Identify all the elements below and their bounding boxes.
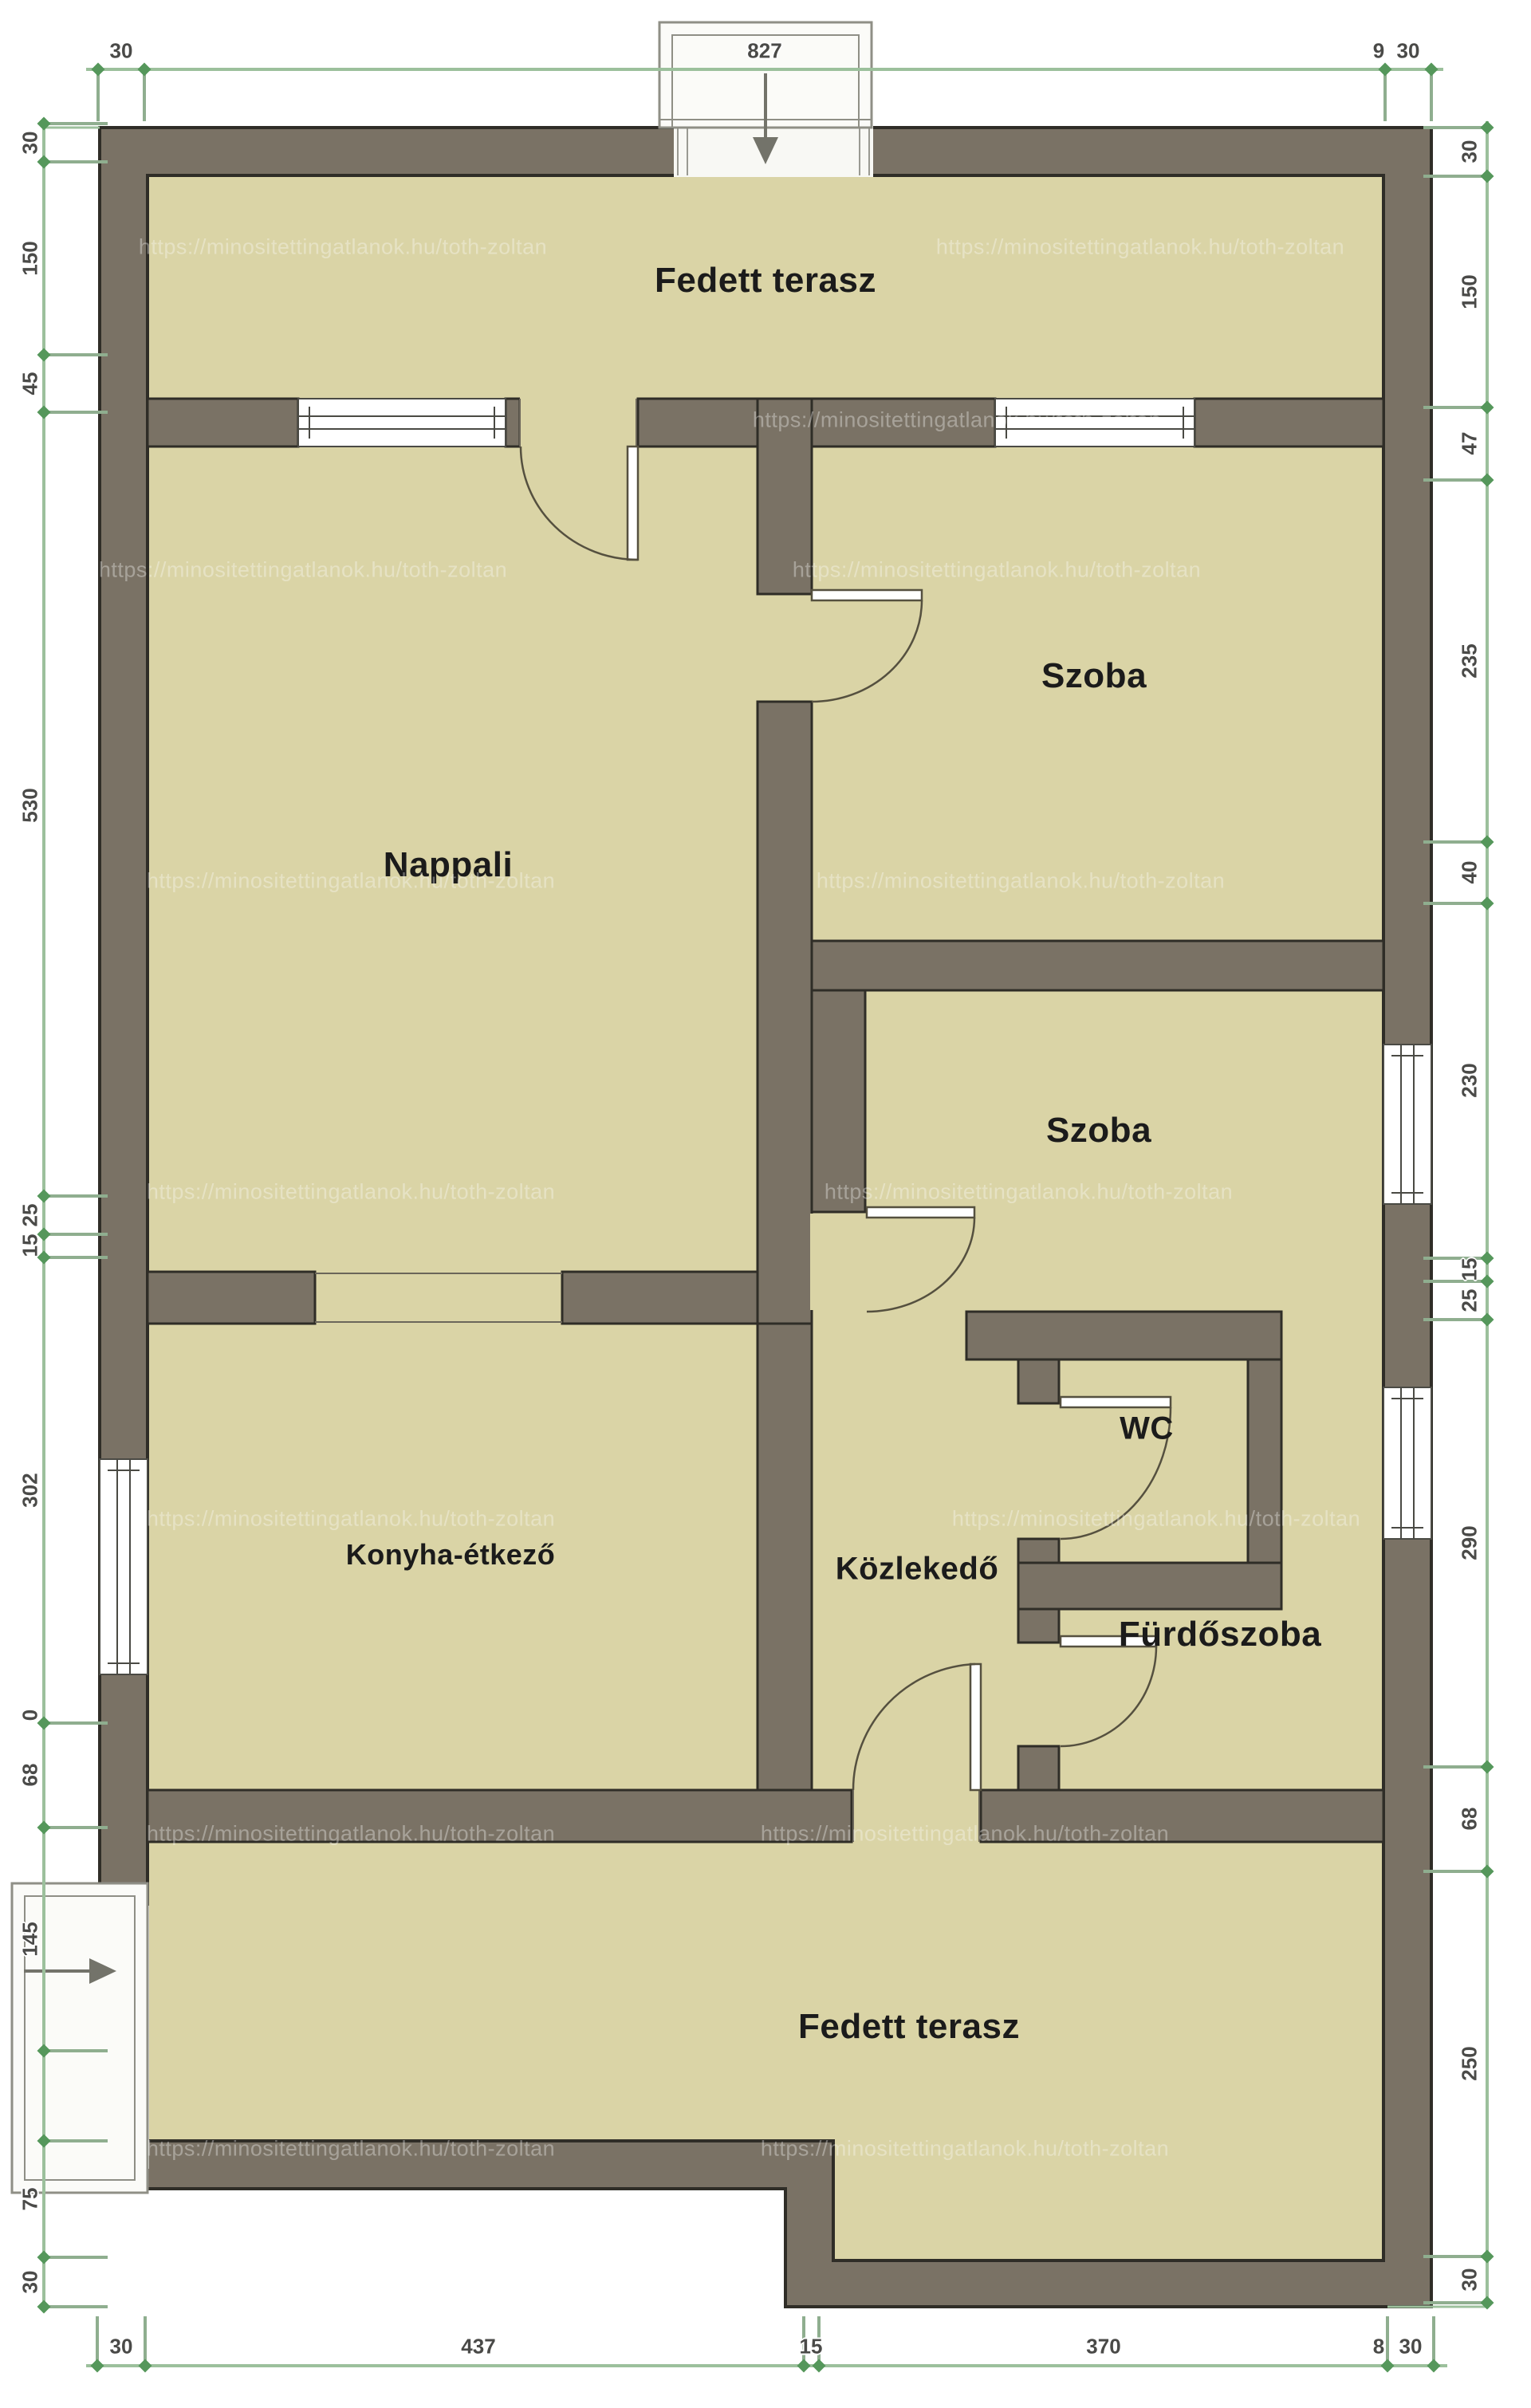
dim-label-right: 290 (1458, 1525, 1482, 1560)
dim-label-right: 235 (1458, 643, 1482, 678)
watermark-text: https://minositettingatlanok.hu/toth-zol… (753, 408, 1161, 433)
watermark-text: https://minositettingatlanok.hu/toth-zol… (761, 2137, 1169, 2162)
watermark-text: https://minositettingatlanok.hu/toth-zol… (99, 558, 507, 583)
room-label-kozlekedo: Közlekedő (836, 1552, 999, 1588)
dim-label-left: 15 (18, 1234, 43, 1257)
watermark-text: https://minositettingatlanok.hu/toth-zol… (147, 1507, 555, 1532)
watermark-text: https://minositettingatlanok.hu/toth-zol… (936, 235, 1344, 260)
dim-label-right: 30 (1458, 2268, 1482, 2292)
room-label-szoba-felso: Szoba (1041, 656, 1147, 696)
watermark-text: https://minositettingatlanok.hu/toth-zol… (825, 1180, 1233, 1205)
dim-label-left: 145 (18, 1922, 43, 1956)
watermark-text: https://minositettingatlanok.hu/toth-zol… (147, 2137, 555, 2162)
dim-label-bottom: 15 (800, 2335, 823, 2359)
dim-label-left: 302 (18, 1473, 43, 1507)
dim-label-bottom: 370 (1086, 2335, 1120, 2359)
watermark-text: https://minositettingatlanok.hu/toth-zol… (817, 869, 1225, 894)
dim-label-right: 15 (1458, 1258, 1482, 1281)
watermark-text: https://minositettingatlanok.hu/toth-zol… (147, 1180, 555, 1205)
labels-layer: Fedett teraszNappaliSzobaSzobaWCKözleked… (0, 0, 1531, 2408)
dim-label-top: 827 (747, 39, 781, 64)
dim-label-bottom: 437 (461, 2335, 495, 2359)
room-label-konyha: Konyha-étkező (346, 1538, 556, 1572)
dim-label-bottom: 8 (1373, 2335, 1384, 2359)
room-label-furdoszoba: Fürdőszoba (1119, 1615, 1321, 1655)
dim-label-left: 45 (18, 372, 43, 395)
dim-label-left: 0 (18, 1710, 43, 1721)
dim-label-left: 30 (18, 132, 43, 155)
dim-label-left: 75 (18, 2188, 43, 2211)
watermark-text: https://minositettingatlanok.hu/toth-zol… (952, 1507, 1360, 1532)
dim-label-right: 25 (1458, 1289, 1482, 1312)
watermark-text: https://minositettingatlanok.hu/toth-zol… (147, 1822, 555, 1847)
dim-label-right: 30 (1458, 140, 1482, 163)
dim-label-right: 68 (1458, 1808, 1482, 1831)
dim-label-right: 47 (1458, 432, 1482, 455)
dim-label-bottom: 30 (110, 2335, 133, 2359)
dim-label-left: 30 (18, 2271, 43, 2294)
floor-plan: Fedett teraszNappaliSzobaSzobaWCKözleked… (0, 0, 1531, 2408)
watermark-text: https://minositettingatlanok.hu/toth-zol… (793, 558, 1201, 583)
watermark-text: https://minositettingatlanok.hu/toth-zol… (761, 1822, 1169, 1847)
room-label-terasz-also: Fedett terasz (798, 2007, 1020, 2047)
dim-label-left: 150 (18, 241, 43, 275)
watermark-text: https://minositettingatlanok.hu/toth-zol… (147, 869, 555, 894)
dim-label-top: 30 (1397, 39, 1420, 64)
dim-label-bottom: 30 (1399, 2335, 1423, 2359)
room-label-szoba-kozepso: Szoba (1046, 1111, 1151, 1151)
room-label-terasz-felso: Fedett terasz (655, 261, 876, 301)
dim-label-top: 9 (1373, 39, 1384, 64)
dim-label-right: 150 (1458, 274, 1482, 309)
room-label-wc: WC (1120, 1411, 1174, 1447)
dim-label-right: 230 (1458, 1063, 1482, 1097)
dim-label-top: 30 (110, 39, 133, 64)
dim-label-left: 530 (18, 788, 43, 822)
dim-label-left: 68 (18, 1764, 43, 1787)
dim-label-right: 40 (1458, 861, 1482, 884)
watermark-text: https://minositettingatlanok.hu/toth-zol… (139, 235, 547, 260)
dim-label-left: 25 (18, 1204, 43, 1227)
dim-label-right: 250 (1458, 2046, 1482, 2080)
